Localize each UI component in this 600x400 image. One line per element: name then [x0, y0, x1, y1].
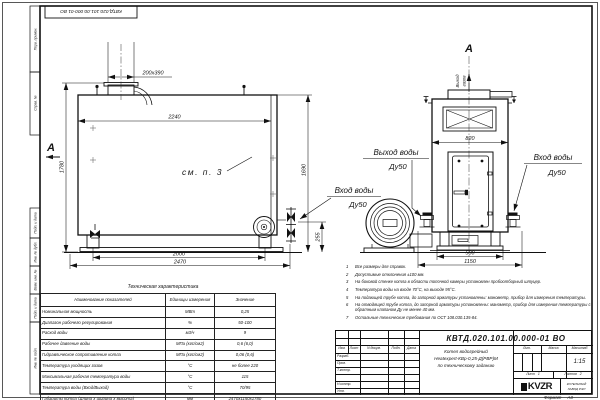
note-item: 2Допустимые отклонения ±100 мм.	[346, 272, 592, 277]
tb-lit-label: Лит.	[513, 345, 541, 353]
note-text: На боковой стенке котла в области топочн…	[355, 279, 592, 284]
side-view	[64, 44, 302, 253]
tb-row-tkontr: Т.контр.	[337, 367, 360, 374]
note-number: 2	[346, 272, 355, 277]
row-label: Гидравлическое сопротивление котла	[41, 350, 166, 361]
note-number: 1	[346, 264, 355, 269]
row-units: МВт	[166, 307, 215, 318]
row-label: Температура уходящих газов	[41, 361, 166, 372]
dim-front-width: 820	[465, 136, 475, 142]
note-item: 5На подающей трубе котла, до запорной ар…	[346, 295, 592, 300]
tb-scale-value: 1:15	[566, 353, 593, 371]
format-label: Формат А3	[544, 395, 594, 400]
tech-table-header-row: Наименование показателей Единицы измерен…	[41, 294, 276, 307]
strip-label-inv-podl: Инв. № подл.	[34, 347, 38, 368]
product-name-line1: Котел водогрейный	[444, 349, 488, 356]
tb-mass-label: Масса	[541, 345, 566, 353]
tb-row-razrab: Разраб.	[337, 353, 360, 360]
note-number: 7	[346, 315, 355, 320]
row-value: 0,6 (6,0)	[215, 339, 276, 350]
strip-label-podp1: Подп. и дата	[34, 212, 38, 233]
note-number: 3	[346, 279, 355, 284]
front-view-dimensions	[418, 143, 522, 269]
row-label: Рабочее давление воды	[41, 339, 166, 350]
title-block: КВТД.020.101.00.000-01 ВО Изм. Лист N до…	[335, 330, 592, 394]
product-name: Котел водогрейный Heatexpert-КВр-0,25-Д(…	[419, 345, 513, 399]
kvzr-logo-icon	[521, 383, 527, 391]
row-units: МПа (кгс/см2)	[166, 339, 215, 350]
drawing-sheet: Перв. примен. Справ. № Подп. и дата Инв.…	[0, 0, 600, 400]
see-note-text: см. п. 3	[182, 167, 223, 177]
table-row: Гидравлическое сопротивление котлаМПа (к…	[41, 350, 276, 361]
row-units: МПа (кгс/см2)	[166, 350, 215, 361]
kvzr-logo: KVZR	[513, 378, 560, 395]
water-inlet-right-text: Вход воды	[534, 153, 573, 162]
format-value: А3	[567, 395, 572, 400]
strip-label-sprav: Справ. №	[34, 95, 38, 111]
strip-label-vzam: Взам. инв. №	[34, 269, 38, 290]
notes-list: 1Все размеры для справок. 2Допустимые от…	[346, 264, 592, 322]
top-docnumber-box: КВТД.020.101.00.000-01 ВО	[45, 6, 137, 18]
dim-base-width: 580	[465, 251, 475, 257]
water-inlet-right-label: Вход воды Ду50	[514, 153, 582, 211]
company-name: КОТЕЛЬНЫЙ ЗАВОД РЭП	[560, 378, 593, 395]
note-text: Остальные технические требования по ОСТ …	[355, 315, 592, 320]
dim-overall-length: 2470	[173, 260, 187, 266]
tb-row-prov: Пров.	[337, 360, 360, 367]
tech-table-title: Техническая характеристика	[60, 284, 266, 290]
company-line2: ЗАВОД РЭП	[568, 387, 586, 391]
dim-body-length: 2240	[167, 115, 181, 121]
tb-row-nkontr: Н.контр.	[337, 381, 360, 388]
titleblock-docnumber: КВТД.020.101.00.000-01 ВО	[419, 331, 593, 345]
note-text: Температура воды на входе 70°С, на выход…	[355, 287, 592, 292]
note-number: 6	[346, 302, 355, 312]
dim-height-total: 1780	[60, 160, 66, 173]
note-item: 3На боковой стенке котла в области топоч…	[346, 279, 592, 284]
kvzr-logo-text: KVZR	[528, 381, 552, 392]
row-label: Максимальная рабочая температура воды	[41, 372, 166, 383]
note-number: 4	[346, 287, 355, 292]
strip-label-podp2: Подп. и дата	[34, 297, 38, 318]
table-row: Номинальная мощностьМВт0,25	[41, 307, 276, 318]
row-units: м3/ч	[166, 328, 215, 339]
water-labels: Выход воды Ду50 Вход воды Ду50 Вход воды…	[300, 148, 582, 219]
tech-col-units: Единицы измерения	[166, 294, 215, 307]
tb-col-ndoc: N докум.	[360, 345, 388, 353]
tb-col-list: Лист	[348, 345, 360, 353]
top-docnumber: КВТД.020.101.00.000-01 ВО	[60, 8, 122, 14]
strip-label-inv-dubl: Инв. № дубл.	[34, 242, 38, 263]
note-item: 6На отводящей трубе котла, до запорной а…	[346, 302, 592, 312]
dim-leg-span: 2000	[172, 252, 186, 258]
tech-table: Наименование показателей Единицы измерен…	[40, 293, 276, 400]
section-marker-a-left: А	[46, 142, 60, 157]
frame-left-strip	[30, 6, 40, 394]
table-row: Максимальная рабочая температура воды°С1…	[41, 372, 276, 383]
row-label: Температура воды (Вход/Выход)	[41, 383, 166, 394]
note-text: Все размеры для справок.	[355, 264, 592, 269]
water-inlet-right-dn: Ду50	[547, 168, 566, 177]
row-label: Расход воды	[41, 328, 166, 339]
table-row: Температура воды (Вход/Выход)°С70/95	[41, 383, 276, 394]
note-item: 1Все размеры для справок.	[346, 264, 592, 269]
dim-stub: 200х390	[141, 71, 164, 77]
product-name-line3: по техническому заданию	[438, 363, 495, 370]
frame-left-strip-labels: Перв. примен. Справ. № Подп. и дата Инв.…	[34, 28, 38, 369]
row-value: 70/95	[215, 383, 276, 394]
note-text: На подающей трубе котла, до запорной арм…	[355, 295, 592, 300]
row-value: 9	[215, 328, 276, 339]
gas-outlet-word2: газов	[462, 75, 467, 87]
water-inlet-left-text: Вход воды	[335, 186, 374, 195]
row-units: °С	[166, 372, 215, 383]
water-outlet-dn: Ду50	[388, 162, 407, 171]
table-row: Расход водым3/ч9	[41, 328, 276, 339]
note-text: На отводящей трубе котла, до запорной ар…	[355, 302, 592, 312]
strip-label-perv: Перв. примен.	[34, 28, 38, 51]
note-text: Допустимые отклонения ±100 мм.	[355, 272, 592, 277]
dim-height-right: 1690	[302, 163, 308, 176]
tb-col-podp: Подп.	[388, 345, 404, 353]
row-value: 0,06 (0,6)	[215, 350, 276, 361]
water-inlet-left-dn: Ду50	[348, 200, 367, 209]
row-label: Диапазон рабочего регулирования	[41, 317, 166, 328]
row-units: °С	[166, 361, 215, 372]
see-note-label: см. п. 3	[182, 157, 252, 177]
note-item: 4Температура воды на входе 70°С, на выхо…	[346, 287, 592, 292]
row-value: 0,25	[215, 307, 276, 318]
table-row: Рабочее давление водыМПа (кгс/см2)0,6 (6…	[41, 339, 276, 350]
gas-outlet-label: Выход газов	[455, 74, 469, 92]
row-label: Габариты котла (Длина х ширина х высота)	[41, 394, 166, 400]
dim-connection-height: 255	[316, 231, 322, 242]
row-units: мм	[166, 394, 215, 400]
tb-sheet-value: 1	[538, 373, 540, 376]
water-outlet-text: Выход воды	[374, 148, 419, 157]
tb-sheets-label: Листов	[564, 373, 576, 376]
tb-sheets-value: 2	[580, 373, 582, 376]
tb-sheet-cell: Лист 1	[513, 371, 553, 378]
tech-col-value: Значение	[215, 294, 276, 307]
tb-sheet-label: Лист	[526, 373, 535, 376]
row-value: 115	[215, 372, 276, 383]
product-name-line2: Heatexpert-КВр-0,25-Д(РВР)М	[434, 356, 498, 363]
row-value: 50-100	[215, 317, 276, 328]
table-row: Температура уходящих газов°Сне более 220	[41, 361, 276, 372]
row-units: %	[166, 317, 215, 328]
section-letter: А	[46, 142, 55, 154]
row-value: 2470х1150х1780	[215, 394, 276, 400]
tb-sheets-cell: Листов 2	[553, 371, 593, 378]
note-number: 5	[346, 295, 355, 300]
center-marks	[90, 125, 276, 197]
row-units: °С	[166, 383, 215, 394]
format-word: Формат	[544, 395, 561, 400]
tb-scale-label: Масштаб	[566, 345, 593, 353]
tb-col-izm: Изм.	[336, 345, 348, 353]
water-inlet-left-label: Вход воды Ду50	[300, 186, 381, 219]
tb-row-utv: Утв.	[337, 388, 360, 395]
row-label: Номинальная мощность	[41, 307, 166, 318]
tb-col-data: Дата	[404, 345, 419, 353]
table-row: Габариты котла (Длина х ширина х высота)…	[41, 394, 276, 400]
note-item: 7Остальные технические требования по ОСТ…	[346, 315, 592, 320]
table-row: Диапазон рабочего регулирования%50-100	[41, 317, 276, 328]
row-value: не более 220	[215, 361, 276, 372]
tech-col-name: Наименование показателей	[41, 294, 166, 307]
view-letter-a: А	[464, 43, 473, 55]
gas-outlet-word1: Выход	[455, 74, 460, 88]
